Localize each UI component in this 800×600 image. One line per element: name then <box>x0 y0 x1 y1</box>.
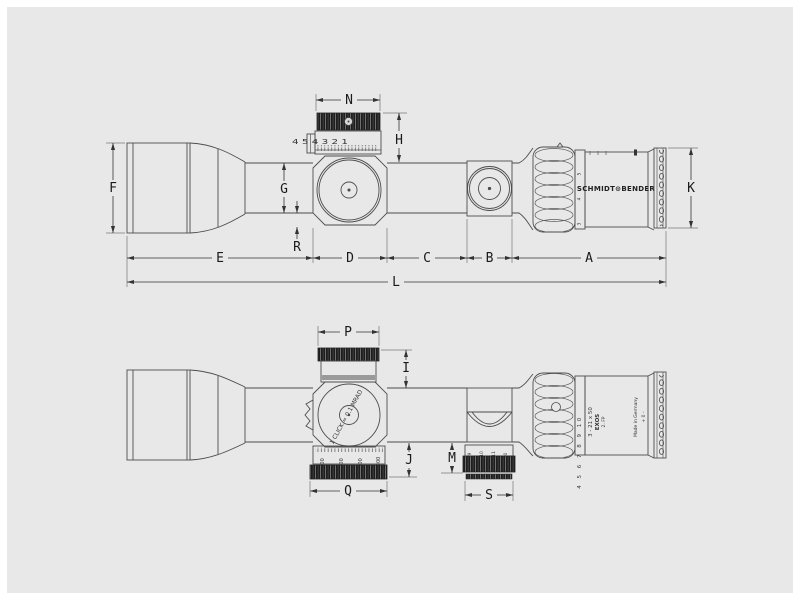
windage-base-shade <box>322 375 375 380</box>
focus-base <box>466 474 512 479</box>
dim-label-B: B <box>486 251 494 266</box>
dim-label-D: D <box>346 251 354 266</box>
made-in-text: Made in Germany <box>633 397 639 437</box>
dim-label-P: P <box>344 325 352 340</box>
zoom-digit-4: 4 <box>577 197 583 200</box>
elevation-scale-numbers: 4 5 4 3 2 1 <box>292 138 348 146</box>
dim-label-C: C <box>423 251 431 266</box>
diagram-canvas: 4 5 4 3 2 1 <box>0 0 800 600</box>
focus-9: 9 <box>467 452 473 455</box>
dim-label-R: R <box>293 240 301 255</box>
dim-label-I: I <box>402 361 410 376</box>
dim-label-K: K <box>687 181 695 196</box>
dim-label-J: J <box>405 453 413 468</box>
drawing-background <box>7 7 793 593</box>
dim-label-E: E <box>216 251 224 266</box>
elevation-scale-ticks <box>317 145 377 151</box>
dim-label-M: M <box>448 451 456 466</box>
dim-label-F: F <box>109 181 117 196</box>
zoom-scale-numbers: 4 5 6 7 8 9 10 <box>577 415 583 488</box>
rear-ring-dots <box>656 150 665 226</box>
scope-dimension-diagram: 4 5 4 3 2 1 <box>0 0 800 600</box>
dim-label-L: L <box>392 275 400 290</box>
windage-knurl <box>318 348 379 361</box>
dim-label-G: G <box>280 182 288 197</box>
zoom-index-dot <box>552 403 561 412</box>
brand-logo-text: SCHMIDT⊙BENDER <box>577 185 656 193</box>
zoom-digit-3: 3 <box>577 222 583 225</box>
rear-ring-plan <box>654 372 666 458</box>
zoom-digit-5: 5 <box>577 172 583 175</box>
parallax-scale-ticks <box>315 447 383 452</box>
parallax-knurl <box>310 465 387 479</box>
dim-label-Q: Q <box>344 484 352 499</box>
series-text: EXOS <box>595 414 601 430</box>
dim-label-N: N <box>345 93 353 108</box>
rear-ring <box>654 148 666 228</box>
dim-label-H: H <box>395 133 403 148</box>
rear-ring-dots-plan <box>656 375 665 455</box>
focus-knurl <box>463 456 515 472</box>
dim-label-S: S <box>485 488 493 503</box>
illumination-text: + 0 - <box>641 411 647 422</box>
diopter-index-mark <box>634 150 637 156</box>
focus-0: 0 <box>503 452 509 455</box>
focal-plane-text: 2. FP <box>601 416 607 427</box>
model-text: 3 - 21 x 50 <box>588 407 594 437</box>
dim-label-A: A <box>585 251 593 266</box>
